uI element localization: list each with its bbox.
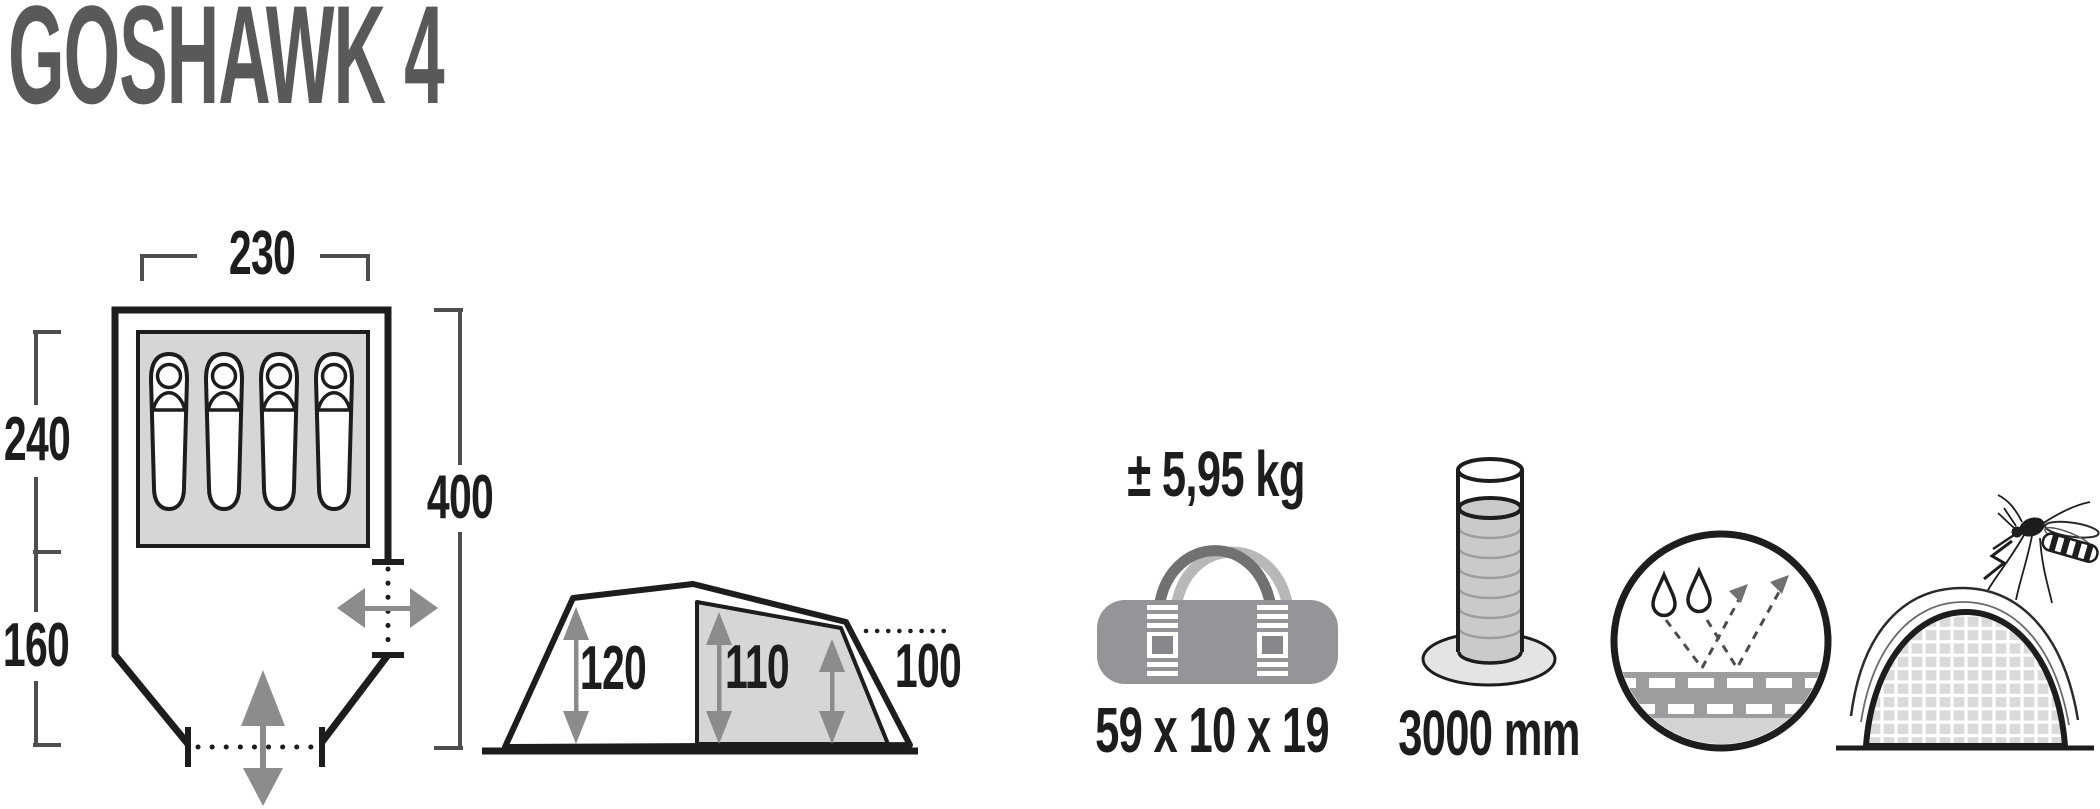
mesh-dome <box>1866 612 2065 746</box>
rear-height-label: 100 <box>895 636 961 698</box>
floor-plan-diagram <box>33 256 463 806</box>
front-height-label: 120 <box>580 638 646 700</box>
duffel-bag-icon <box>1097 551 1338 684</box>
mosquito-net-icon <box>1836 495 2100 748</box>
total-depth-label: 400 <box>427 467 493 529</box>
weight-label: ± 5,95 kg <box>1127 442 1304 506</box>
waterproof-membrane-icon <box>1590 534 1832 752</box>
side-view-diagram <box>482 584 952 751</box>
double-arrow-horizontal-icon <box>337 588 438 628</box>
pack-size-label: 59 x 10 x 19 <box>1095 698 1329 762</box>
product-title: GOSHAWK 4 <box>8 0 444 125</box>
tent-spec-sheet: GOSHAWK 4 230 240 160 400 120 110 100 ± … <box>0 0 2100 809</box>
water-column-icon <box>1423 459 1555 685</box>
floor-width-label: 230 <box>229 223 295 285</box>
sleeping-bag-icon <box>261 354 297 509</box>
sleeping-depth-label: 240 <box>4 409 70 471</box>
water-column-label: 3000 mm <box>1398 701 1580 765</box>
sleeping-bag-icon <box>316 354 352 509</box>
sleeping-bag-icon <box>206 354 242 509</box>
sleeping-bag-icon <box>151 354 187 509</box>
mosquito-icon <box>1988 495 2100 603</box>
inner-height-label: 110 <box>725 637 789 699</box>
double-arrow-vertical-icon <box>241 670 285 806</box>
vestibule-depth-label: 160 <box>3 615 69 677</box>
